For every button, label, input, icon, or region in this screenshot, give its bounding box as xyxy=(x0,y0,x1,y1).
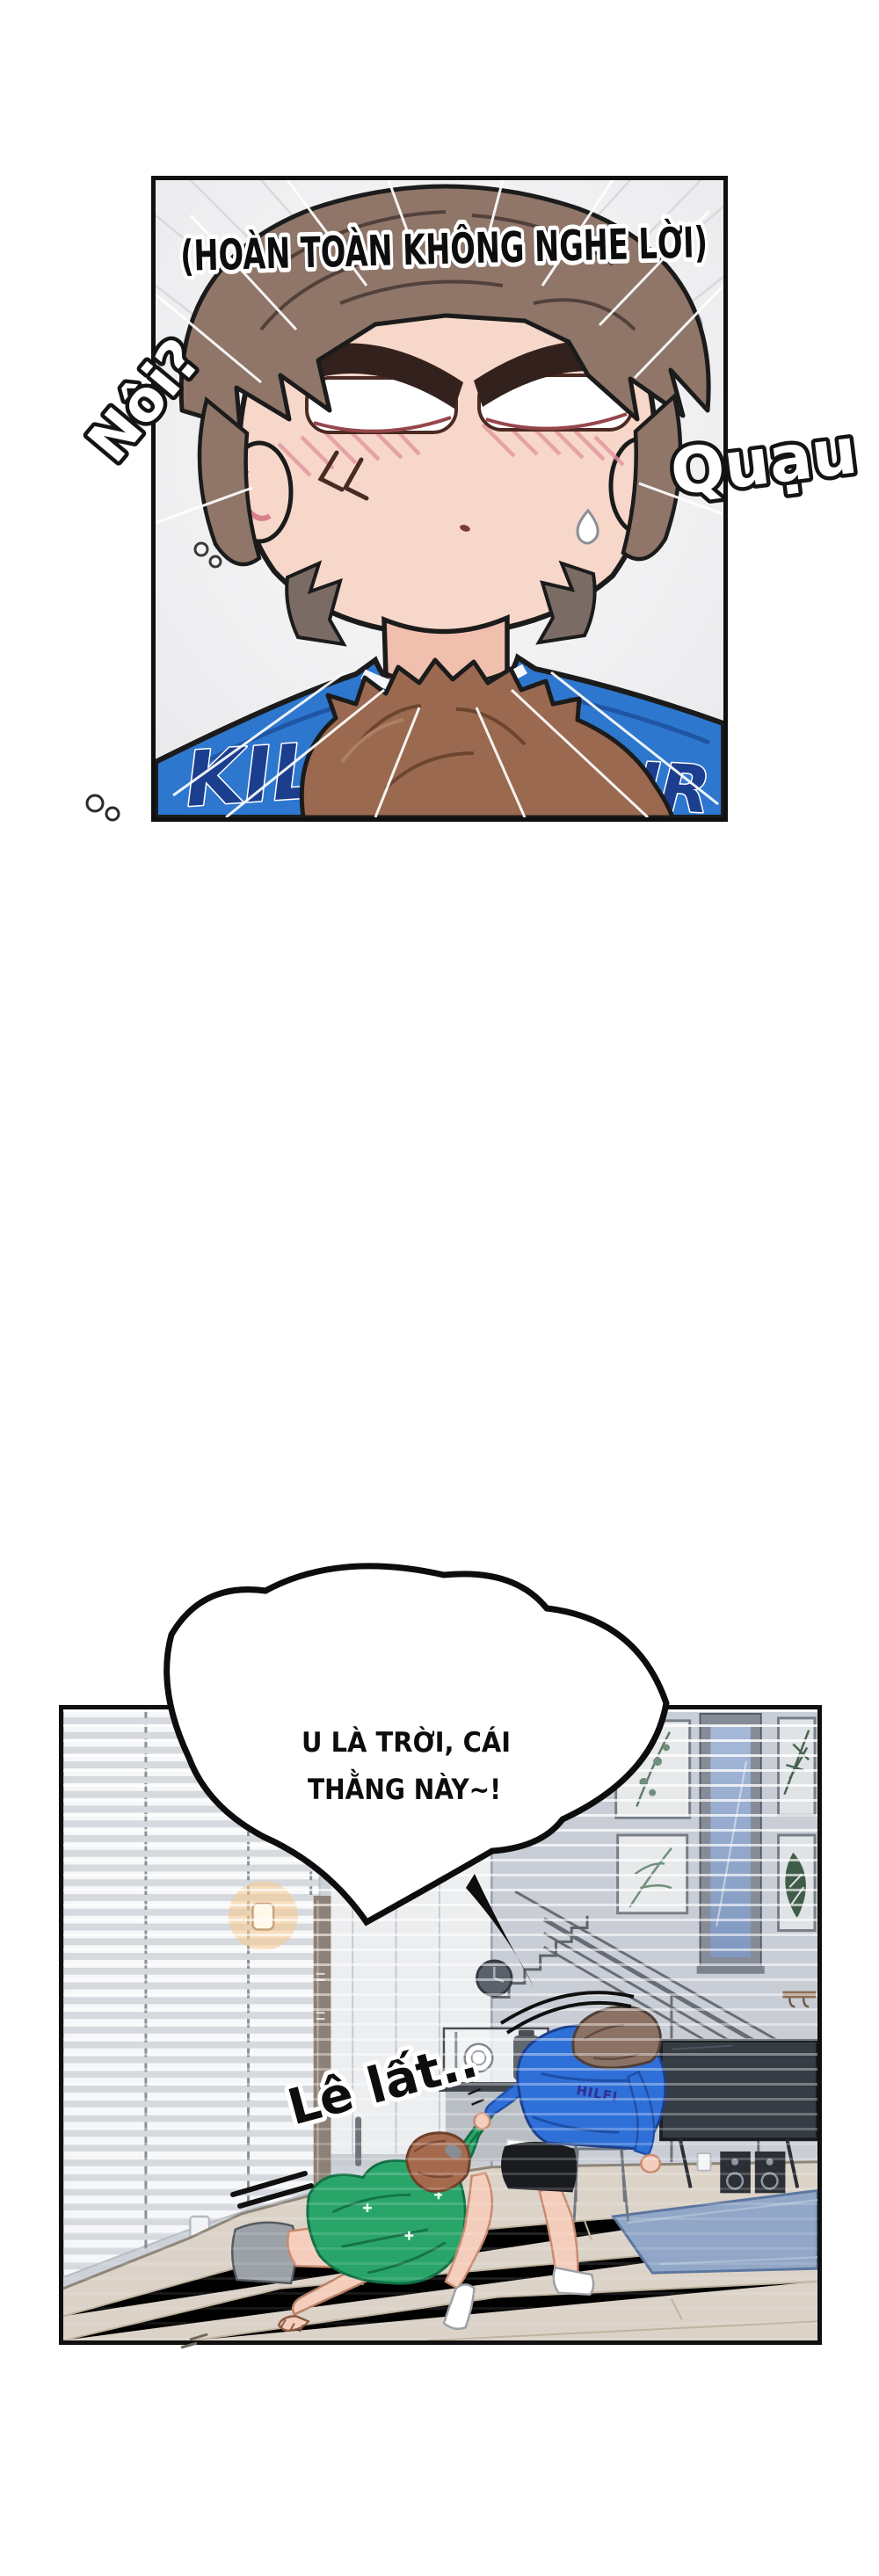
gray-shorts xyxy=(232,2223,295,2283)
black-shorts xyxy=(501,2142,577,2193)
frame-eucalyptus xyxy=(616,1721,690,1818)
panel-2-scene: HILFI xyxy=(63,1709,817,2340)
tv-screen xyxy=(661,2041,817,2139)
wall-clock xyxy=(477,1961,512,1995)
frame-monstera xyxy=(779,1835,816,1930)
power-outlet xyxy=(698,2153,711,2171)
door-handle xyxy=(355,2117,361,2166)
glass-door xyxy=(697,1714,765,1974)
green-bottle xyxy=(465,2068,474,2083)
panel-1-scene: KIL FIGHR xyxy=(156,180,723,817)
panel-2-room-scene: HILFI xyxy=(59,1705,822,2345)
wall-lamp xyxy=(229,1881,298,1950)
comic-page: KIL FIGHR xyxy=(0,0,879,2576)
grab-fist xyxy=(475,2114,490,2130)
panel-1-angry-face: KIL FIGHR xyxy=(151,176,728,822)
frame-palm xyxy=(779,1718,816,1815)
swing-fist xyxy=(641,2155,660,2173)
frame-branch xyxy=(618,1835,687,1913)
trail-bubbles xyxy=(79,789,132,829)
venetian-blinds xyxy=(63,1709,331,2282)
